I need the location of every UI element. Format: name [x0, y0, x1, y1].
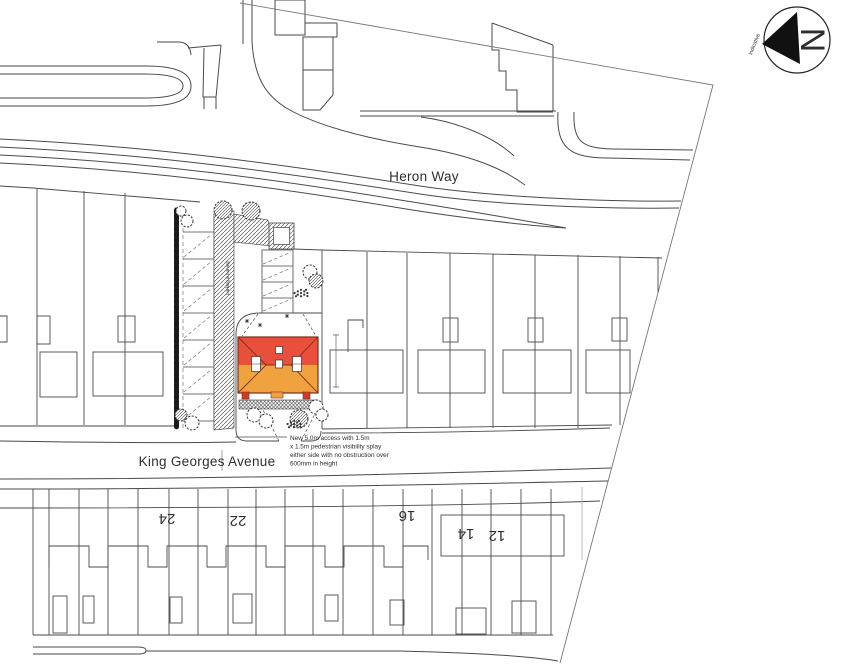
site-plan: parking & turning: [0, 0, 841, 667]
access-note-line1: New 5.0m access with 1.5m: [290, 435, 370, 442]
parking-bays-west: [183, 214, 214, 430]
terrace-frontage: [49, 546, 428, 567]
north-indicative-label: indicative: [748, 33, 762, 56]
road-cul-de-sac: [0, 66, 191, 106]
site-boundary-line: [240, 3, 713, 663]
house-number-22: 22: [230, 512, 247, 529]
top-buildings: [275, 0, 553, 156]
rooflight: [276, 347, 283, 354]
house-number-16: 16: [399, 507, 416, 524]
access-note-line4: 600mm in height: [290, 461, 337, 468]
proposed-dwelling: [238, 337, 318, 409]
site-plan-canvas: parking & turning: [0, 0, 841, 667]
street-label-heron-way: Heron Way: [389, 169, 459, 184]
front-path: [239, 400, 318, 409]
access-note-line3: either side with no obstruction over: [290, 452, 390, 459]
shrub-cluster: [294, 289, 309, 298]
porch-pillar-right: [303, 392, 310, 399]
porch-pillar-left: [242, 392, 249, 399]
north-letter: N: [793, 28, 831, 53]
street-label-king-georges: King Georges Avenue: [139, 454, 276, 469]
west-plots: [0, 186, 200, 426]
parking-bays-east: [262, 250, 293, 313]
south-plots: [0, 487, 600, 635]
north-arrow: N indicative: [748, 7, 831, 73]
house-number-24: 24: [159, 510, 176, 527]
parking-turning-label: parking & turning: [225, 261, 230, 295]
house-numbers: 24 22 16 14 12: [159, 507, 506, 544]
entrance-canopy: [271, 392, 283, 398]
roof-rear-face: [238, 365, 318, 393]
house-number-12: 12: [489, 527, 506, 544]
hedge-boundary: [177, 210, 184, 428]
east-plots: [293, 249, 662, 433]
chimney: [276, 360, 283, 368]
bottom-road: [33, 647, 558, 661]
access-note-line2: x 1.5m pedestrian visibility splay: [290, 444, 382, 451]
house-number-14: 14: [458, 525, 475, 542]
